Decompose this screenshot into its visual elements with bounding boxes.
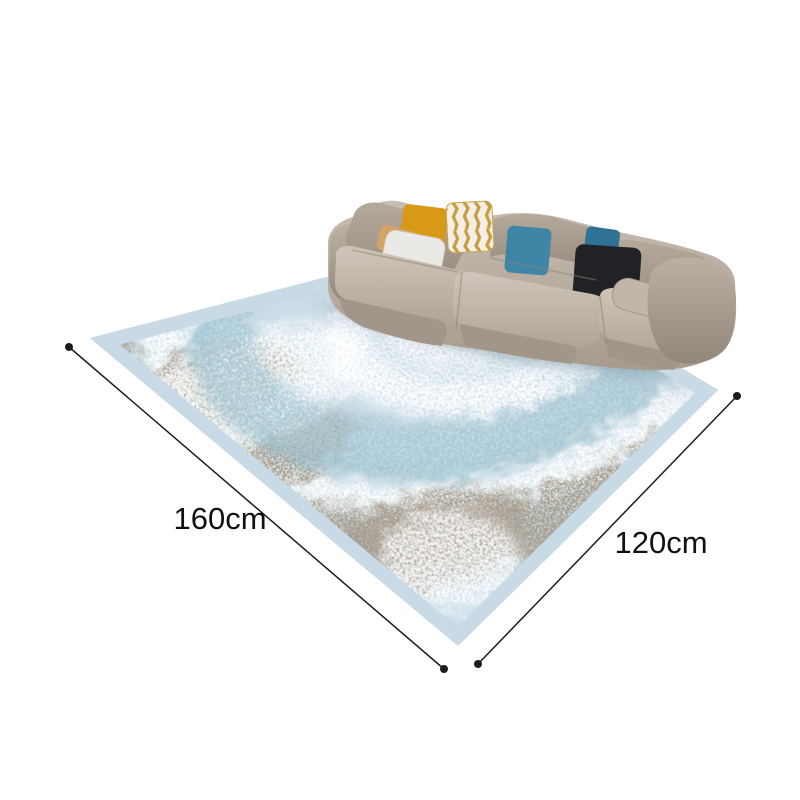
pillow-blue	[504, 225, 552, 276]
dimension-length-dot-end	[440, 665, 448, 673]
pillow-gold-patterned	[446, 201, 495, 253]
dimension-width-dot-start	[474, 660, 482, 668]
dimension-length-label: 160cm	[173, 501, 266, 536]
sofa-right-arm	[648, 257, 737, 363]
dimension-width-dot-end	[733, 392, 741, 400]
dimension-length-dot-start	[65, 343, 73, 351]
product-image: 160cm 120cm	[0, 0, 800, 800]
dimension-width-label: 120cm	[614, 525, 707, 560]
scene-canvas: 160cm 120cm	[0, 0, 800, 800]
